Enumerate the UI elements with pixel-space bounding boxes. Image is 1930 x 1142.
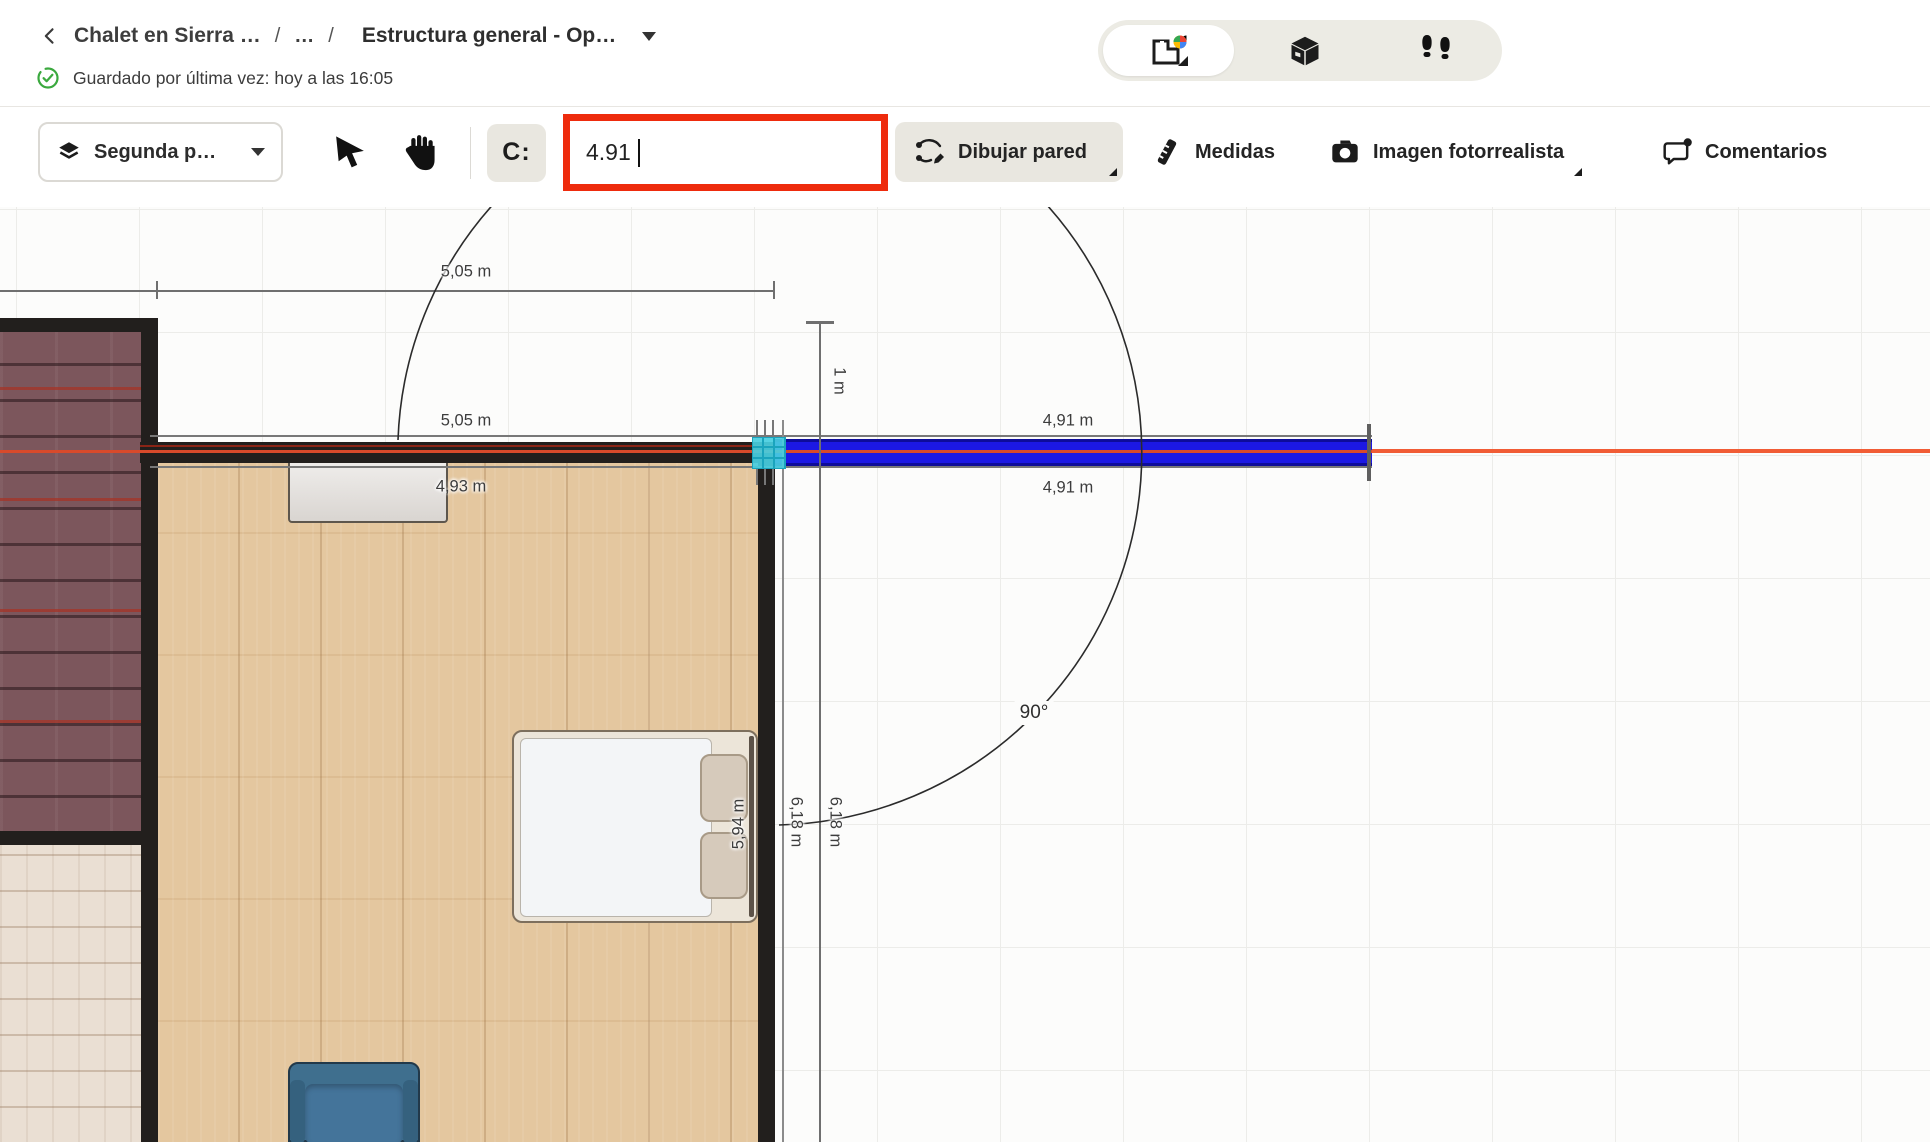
dimension-label: 1 m — [830, 367, 849, 395]
dimension-label: 4,91 m — [1043, 412, 1093, 431]
angle-label: 90° — [1015, 701, 1054, 725]
dimension-label: 6,18 m — [826, 797, 845, 847]
color-wheel — [1173, 35, 1186, 48]
breadcrumb-collapsed[interactable]: … — [294, 25, 314, 48]
draw-wall-button[interactable]: Dibujar pared — [895, 122, 1123, 182]
layers-icon — [56, 139, 82, 165]
breadcrumb: Chalet en Sierra … / … / Estructura gene… — [40, 24, 656, 48]
breadcrumb-separator-2: / — [328, 25, 334, 48]
back-icon[interactable] — [40, 25, 60, 47]
footprints-icon — [1416, 33, 1456, 69]
photorealistic-image-label: Imagen fotorrealista — [1373, 141, 1564, 164]
toolbar-divider — [470, 127, 471, 179]
comments-button[interactable]: Comentarios — [1662, 122, 1827, 182]
dimension-label: 5,94 m — [730, 799, 749, 849]
breadcrumb-separator: / — [275, 25, 281, 48]
floorplan-canvas[interactable]: 5,05 m 5,05 m 4,93 m 4,91 m 4,91 m 1 m 6… — [0, 207, 1930, 1142]
dimension-label: 5,05 m — [441, 263, 491, 282]
floor-selector-label: Segunda p… — [94, 141, 216, 164]
magnet-icon: C: — [502, 138, 530, 167]
view-mode-switcher — [1098, 20, 1502, 81]
cube-3d-icon — [1287, 33, 1323, 69]
comment-icon — [1662, 137, 1692, 167]
breadcrumb-design-name[interactable]: Estructura general - Op… — [362, 24, 616, 48]
photorealistic-image-button[interactable]: Imagen fotorrealista — [1330, 122, 1578, 182]
floor-selector-caret-icon — [251, 148, 265, 156]
pan-hand-tool[interactable] — [402, 133, 440, 173]
dimension-label: 4,93 m — [436, 478, 486, 497]
angle-arc — [0, 207, 1930, 1142]
draw-wall-label: Dibujar pared — [958, 141, 1087, 164]
floor-selector[interactable]: Segunda p… — [38, 122, 283, 182]
draw-wall-icon — [913, 138, 945, 166]
saved-status-text: Guardado por última vez: hoy a las 16:05 — [73, 68, 393, 89]
measures-label: Medidas — [1195, 141, 1275, 164]
floorplan-2d-icon — [1148, 34, 1190, 68]
wall-length-highlight — [563, 114, 888, 191]
wall-length-input[interactable] — [570, 121, 881, 184]
view-mode-2d-plan[interactable] — [1103, 25, 1234, 76]
snap-point-indicator — [752, 437, 786, 469]
dimension-label: 5,05 m — [441, 412, 491, 431]
comments-label: Comentarios — [1705, 141, 1827, 164]
dimension-label: 6,18 m — [787, 797, 806, 847]
camera-icon — [1330, 138, 1360, 166]
select-pointer-tool[interactable] — [332, 133, 368, 173]
magnet-snap-tool[interactable]: C: — [487, 124, 546, 182]
measures-button[interactable]: Medidas — [1152, 122, 1275, 182]
header: Chalet en Sierra … / … / Estructura gene… — [0, 0, 1930, 107]
saved-status-row: Guardado por última vez: hoy a las 16:05 — [36, 66, 393, 90]
ruler-icon — [1152, 137, 1182, 167]
draw-wall-options-icon[interactable] — [1109, 168, 1117, 176]
view-mode-walkthrough[interactable] — [1371, 20, 1502, 81]
breadcrumb-project[interactable]: Chalet en Sierra … — [74, 24, 261, 48]
dimension-label: 4,91 m — [1043, 479, 1093, 498]
floor-planner-app: Chalet en Sierra … / … / Estructura gene… — [0, 0, 1930, 1142]
photo-options-icon[interactable] — [1574, 168, 1582, 176]
view-mode-3d[interactable] — [1239, 20, 1370, 81]
text-caret — [638, 139, 640, 167]
sync-success-icon — [36, 66, 60, 90]
design-dropdown-caret-icon[interactable] — [642, 32, 656, 41]
toolbar: Segunda p… C: — [0, 107, 1930, 208]
